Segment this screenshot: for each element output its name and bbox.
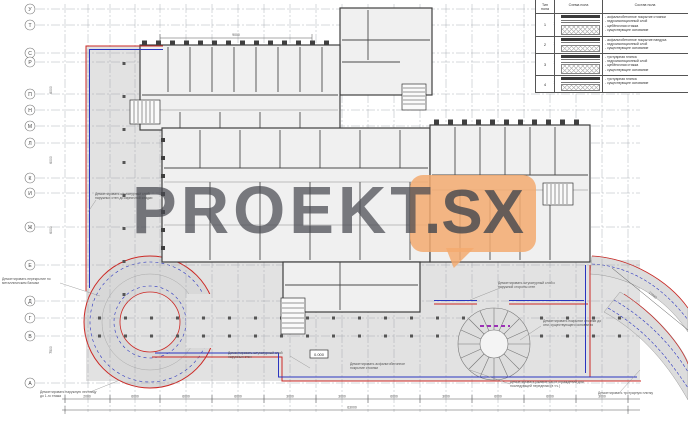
watermark-text: PROEKT [132, 176, 435, 246]
legend-row: 4 ↕ - тротуарная плитка- существующее ос… [536, 75, 688, 92]
legend-header-type: Тип пола [536, 0, 555, 13]
axis-label: П [28, 92, 32, 98]
floor-types-legend: Тип пола Схема пола Состав пола 1 ↕ - ас… [535, 0, 688, 93]
axis-label: И [28, 191, 32, 197]
annotation-note: Демонтировать штукатурный слой с наружно… [498, 281, 560, 290]
svg-text:6000: 6000 [49, 156, 53, 164]
axis-bubbles: У Т С Р П Н М Л К И Ж Е Д Г В А [25, 4, 35, 388]
thickness-arrow-icon: ↕ [553, 60, 556, 66]
svg-text:3000: 3000 [442, 395, 450, 399]
spiral-stair [458, 308, 530, 380]
svg-text:6000: 6000 [182, 395, 190, 399]
svg-text:6000: 6000 [390, 395, 398, 399]
svg-text:3000: 3000 [286, 395, 294, 399]
axis-label: М [28, 124, 32, 130]
floor-schema-diagram [561, 55, 600, 75]
svg-text:6000: 6000 [49, 226, 53, 234]
annotation-note: Демонтировать покрытие стоянки до отм. с… [543, 319, 607, 328]
watermark-suffix: .SX [413, 176, 535, 250]
floor-schema-diagram [561, 77, 600, 91]
legend-composition: - тротуарная плитка- существующее основа… [603, 76, 687, 92]
legend-row: 3 ↕ - тротуарная плитка- гидроизоляционн… [536, 53, 688, 76]
dim-top: 9000 [232, 33, 240, 37]
axis-label: Л [28, 141, 31, 147]
axis-label: С [28, 51, 32, 57]
annotation-note: Демонтировать наружную лестницу до 1-го … [40, 390, 100, 399]
legend-header-schema: Схема пола [555, 0, 603, 13]
svg-text:6000: 6000 [546, 395, 554, 399]
thickness-arrow-icon: ↕ [553, 41, 556, 47]
annotation-note: Демонтировать перекрытие по металлически… [2, 277, 60, 286]
legend-row: 2 ↕ - асфальтобетонное покрытие пандуса-… [536, 36, 688, 53]
thickness-arrow-icon: ↕ [553, 21, 556, 27]
cad-drawing-page: { "watermark": { "main": "PROEKT", "suff… [0, 0, 688, 427]
svg-text:3000: 3000 [338, 395, 346, 399]
svg-text:6000: 6000 [234, 395, 242, 399]
elevation-value: 0.000 [314, 352, 325, 357]
annotation-note: Демонтировать тротуарную плитку [598, 391, 678, 395]
thickness-arrow-icon: ↕ [553, 80, 556, 86]
legend-header-composition: Состав пола [603, 0, 687, 13]
legend-composition: - асфальтобетонное покрытие стоянки- гид… [603, 14, 687, 36]
elevation-marker: 0.000 [310, 350, 328, 358]
annotation-note: Демонтировать асфальтобетонное покрытие … [350, 362, 416, 371]
svg-text:7500: 7500 [49, 346, 53, 354]
axis-label: Г [29, 316, 32, 322]
svg-text:6000: 6000 [494, 395, 502, 399]
dim-total: 63000 [347, 406, 357, 410]
legend-row: 1 ↕ - асфальтобетонное покрытие стоянки-… [536, 13, 688, 36]
axis-label: Ж [28, 225, 33, 231]
annotation-note: Демонтировать ржавые части ограждений дл… [510, 380, 594, 389]
floor-schema-diagram [561, 15, 600, 35]
axis-label: Н [28, 108, 32, 114]
annotation-note: Демонтировать штукатурный слой наружных … [228, 351, 286, 360]
legend-composition: - тротуарная плитка- гидроизоляционный с… [603, 54, 687, 76]
axis-label: Т [28, 23, 31, 29]
svg-text:6000: 6000 [131, 395, 139, 399]
svg-text:6000: 6000 [49, 86, 53, 94]
legend-composition: - асфальтобетонное покрытие пандуса- гид… [603, 37, 687, 53]
axis-label: К [29, 176, 32, 182]
floor-schema-diagram [561, 38, 600, 52]
drawing-stage: У Т С Р П Н М Л К И Ж Е Д Г В А [0, 0, 688, 427]
